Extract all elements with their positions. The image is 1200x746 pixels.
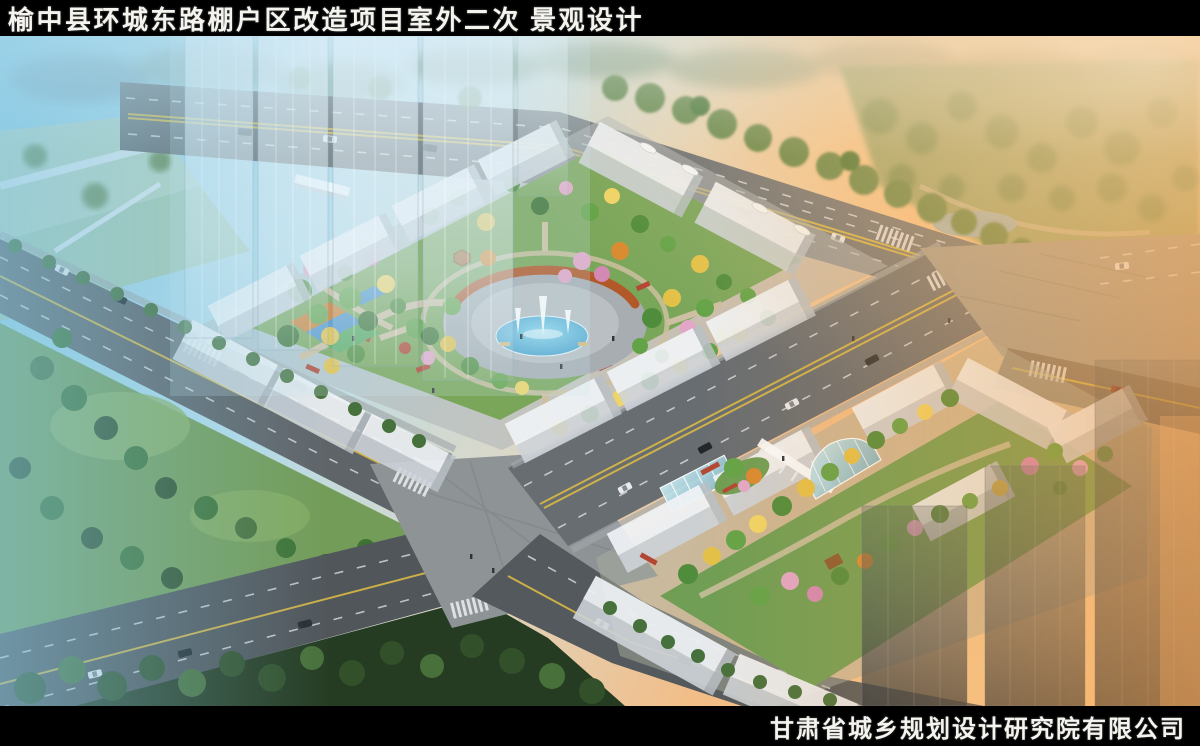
title-bar: 榆中县环城东路棚户区改造项目室外二次 景观设计 [0,0,1200,36]
rendering-canvas [0,36,1200,706]
page-title: 榆中县环城东路棚户区改造项目室外二次 景观设计 [8,0,644,37]
credit-bar: 甘肃省城乡规划设计研究院有限公司 [0,706,1200,746]
atmosphere-overlays [0,36,1200,706]
rendering-board: 榆中县环城东路棚户区改造项目室外二次 景观设计 [0,0,1200,746]
aerial-rendering [0,36,1200,706]
design-institute-name: 甘肃省城乡规划设计研究院有限公司 [770,709,1186,744]
